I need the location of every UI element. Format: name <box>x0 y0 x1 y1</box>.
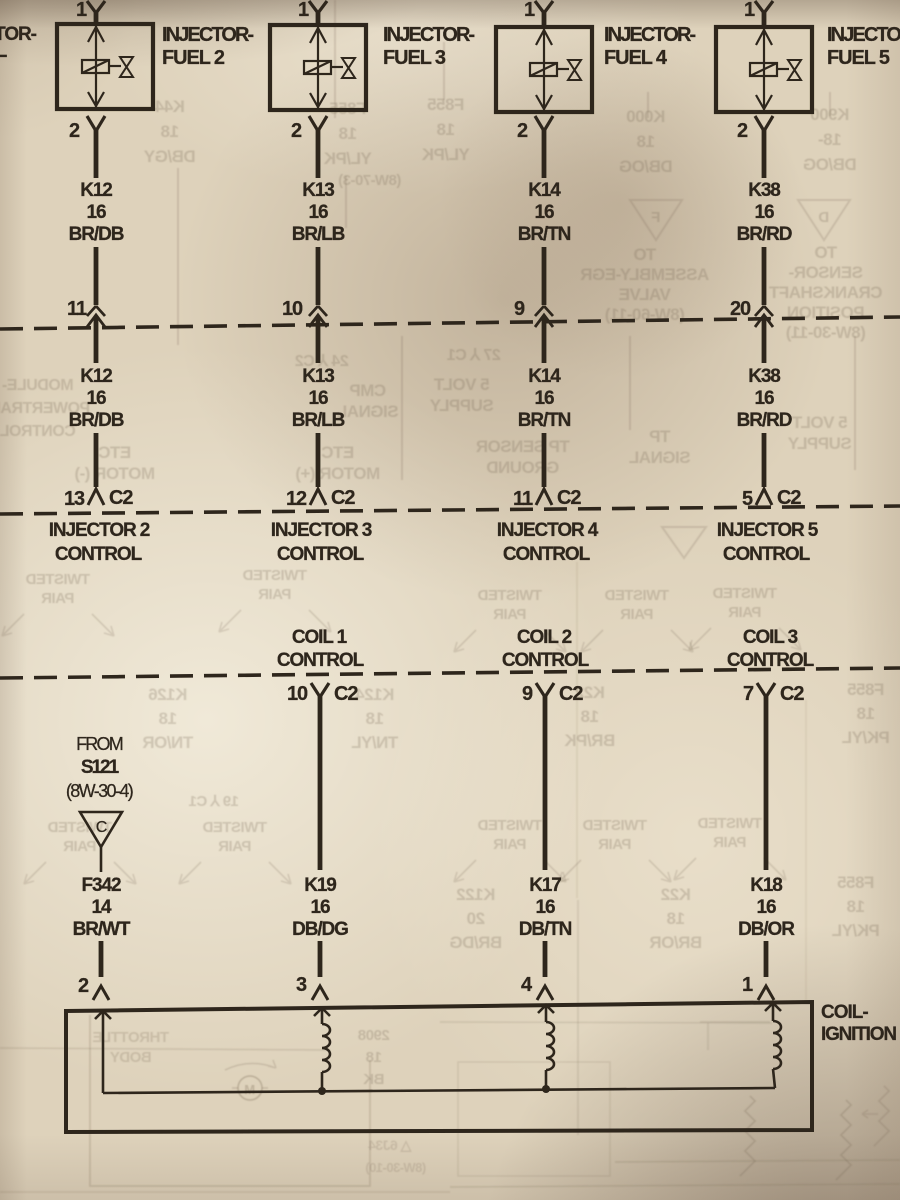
svg-text:CONTROL: CONTROL <box>55 544 143 565</box>
svg-text:CRANKSHAFT: CRANKSHAFT <box>768 283 882 302</box>
svg-text:16: 16 <box>311 897 330 918</box>
svg-text:MOTOR (-): MOTOR (-) <box>75 464 155 483</box>
svg-text:16: 16 <box>309 202 328 223</box>
svg-text:18: 18 <box>667 909 685 928</box>
svg-text:2: 2 <box>291 120 302 142</box>
svg-text:18: 18 <box>366 1049 382 1066</box>
svg-text:2: 2 <box>78 975 89 997</box>
svg-text:K14: K14 <box>528 180 561 201</box>
svg-text:9: 9 <box>522 683 533 705</box>
svg-text:BR/DG: BR/DG <box>450 933 503 952</box>
svg-text:16: 16 <box>535 388 554 409</box>
svg-text:K18: K18 <box>750 875 782 896</box>
svg-text:YL/PK: YL/PK <box>323 149 372 168</box>
svg-text:11: 11 <box>513 488 533 510</box>
svg-text:YL/PK: YL/PK <box>421 145 470 164</box>
svg-text:FROM: FROM <box>76 734 123 754</box>
svg-text:TN/YL: TN/YL <box>352 733 399 752</box>
svg-text:9: 9 <box>514 298 525 320</box>
svg-text:INJECTOR-: INJECTOR- <box>604 24 696 46</box>
svg-text:MODULE-: MODULE- <box>2 377 73 394</box>
svg-text:S121: S121 <box>81 757 120 778</box>
svg-text:CONTROL: CONTROL <box>723 544 811 565</box>
svg-text:ETC: ETC <box>322 443 355 462</box>
svg-text:5 VOLT: 5 VOLT <box>433 375 489 394</box>
svg-text:16: 16 <box>535 202 554 223</box>
svg-text:TWISTED: TWISTED <box>202 819 267 836</box>
svg-text:PAIR: PAIR <box>218 838 251 855</box>
svg-text:TWISTED: TWISTED <box>25 571 90 588</box>
svg-text:CMP: CMP <box>350 381 386 400</box>
svg-text:SUPPLY: SUPPLY <box>429 396 494 415</box>
svg-text:INJECTOR 3: INJECTOR 3 <box>271 520 372 541</box>
svg-text:BR/PK: BR/PK <box>564 731 616 750</box>
svg-text:10: 10 <box>282 298 303 320</box>
svg-text:2: 2 <box>69 120 80 142</box>
svg-text:INJECTOR 4: INJECTOR 4 <box>497 520 599 541</box>
svg-text:TWISTED: TWISTED <box>477 817 542 834</box>
svg-text:TP: TP <box>649 427 670 446</box>
svg-text:7: 7 <box>743 683 754 705</box>
svg-text:M: M <box>245 1082 255 1097</box>
svg-text:DB/OR: DB/OR <box>738 919 795 940</box>
svg-text:F342: F342 <box>82 875 121 896</box>
svg-text:18: 18 <box>161 122 179 141</box>
svg-text:IGNITION: IGNITION <box>821 1024 896 1045</box>
svg-text:CONTROL: CONTROL <box>277 544 365 565</box>
svg-text:PAIR: PAIR <box>598 836 631 853</box>
svg-text:16: 16 <box>755 202 774 223</box>
svg-text:DB/TN: DB/TN <box>519 919 572 940</box>
svg-text:PAIR: PAIR <box>63 838 96 855</box>
svg-text:K124: K124 <box>355 685 395 704</box>
svg-text:C2: C2 <box>777 487 801 509</box>
svg-text:BR/RD: BR/RD <box>737 224 792 245</box>
svg-text:(8W-30-4): (8W-30-4) <box>66 781 133 801</box>
svg-text:18: 18 <box>339 124 357 143</box>
svg-text:K000: K000 <box>627 107 666 126</box>
svg-text:TO: TO <box>634 245 657 264</box>
svg-text:K13: K13 <box>302 366 334 387</box>
svg-text:MOTOR (+): MOTOR (+) <box>296 464 380 483</box>
svg-text:PAIR: PAIR <box>620 606 653 623</box>
svg-text:PAIR: PAIR <box>713 834 746 851</box>
svg-text:C2: C2 <box>331 487 355 509</box>
svg-text:13: 13 <box>64 488 85 510</box>
svg-text:TWISTED: TWISTED <box>582 817 647 834</box>
svg-text:TWISTED: TWISTED <box>477 587 542 604</box>
svg-text:11: 11 <box>67 298 87 320</box>
svg-text:TO: TO <box>815 243 838 262</box>
svg-text:K122: K122 <box>457 885 496 904</box>
svg-text:1: 1 <box>298 0 309 21</box>
svg-text:F855: F855 <box>838 873 875 892</box>
svg-text:K38: K38 <box>748 366 780 387</box>
svg-text:DB/OG: DB/OG <box>803 155 857 174</box>
svg-text:K12: K12 <box>80 366 112 387</box>
svg-text:18: 18 <box>847 897 865 916</box>
svg-text:2908: 2908 <box>358 1027 390 1044</box>
svg-text:F855: F855 <box>428 95 465 114</box>
svg-text:18: 18 <box>437 120 455 139</box>
svg-text:18: 18 <box>581 707 599 726</box>
svg-text:CONTROL: CONTROL <box>727 650 815 671</box>
svg-text:1: 1 <box>524 0 535 21</box>
svg-text:1: 1 <box>742 974 753 996</box>
svg-text:4: 4 <box>521 974 533 996</box>
svg-text:PAIR: PAIR <box>258 586 291 603</box>
svg-text:14: 14 <box>92 897 112 918</box>
svg-text:C2: C2 <box>557 487 581 509</box>
svg-text:18: 18 <box>159 709 177 728</box>
svg-text:INJECTOR 2: INJECTOR 2 <box>49 520 150 541</box>
svg-text:CONTROL: CONTROL <box>277 650 365 671</box>
svg-text:SIGNAL: SIGNAL <box>337 402 398 421</box>
svg-text:SENSOR-: SENSOR- <box>789 263 863 282</box>
svg-text:16: 16 <box>757 897 776 918</box>
svg-text:INJECTOR-: INJECTOR- <box>162 24 254 46</box>
svg-text:INJECTOR 5: INJECTOR 5 <box>717 520 819 541</box>
svg-text:3: 3 <box>296 974 307 996</box>
svg-text:(8W-30-10): (8W-30-10) <box>366 1160 427 1175</box>
svg-text:C: C <box>96 819 107 836</box>
svg-text:K126: K126 <box>149 685 188 704</box>
svg-text:18-: 18- <box>818 130 841 149</box>
svg-text:TWISTED: TWISTED <box>697 815 762 832</box>
svg-text:CONTROL: CONTROL <box>0 423 76 440</box>
svg-text:5: 5 <box>742 488 753 510</box>
svg-text:COIL 3: COIL 3 <box>743 627 798 648</box>
svg-text:K44: K44 <box>154 97 185 116</box>
svg-text:BR/RD: BR/RD <box>737 410 792 431</box>
svg-text:16: 16 <box>755 388 774 409</box>
svg-text:PAIR: PAIR <box>728 604 761 621</box>
svg-text:19 ⅄ C1: 19 ⅄ C1 <box>189 793 239 810</box>
svg-text:18: 18 <box>857 704 875 723</box>
svg-text:F855: F855 <box>848 680 885 699</box>
svg-text:INJECTOR-: INJECTOR- <box>827 24 900 46</box>
svg-text:BK: BK <box>363 1071 384 1088</box>
svg-text:BR/LB: BR/LB <box>292 224 345 245</box>
svg-text:COIL 2: COIL 2 <box>517 627 572 648</box>
svg-text:CONTROL: CONTROL <box>503 544 591 565</box>
svg-text:C2: C2 <box>559 683 583 705</box>
svg-text:BR/LB: BR/LB <box>292 410 345 431</box>
svg-text:C2: C2 <box>109 487 133 509</box>
svg-text:BR/DB: BR/DB <box>69 410 124 431</box>
svg-text:C2: C2 <box>334 683 358 705</box>
svg-text:BR/TN: BR/TN <box>518 410 571 431</box>
svg-text:D: D <box>818 209 829 226</box>
svg-text:16: 16 <box>536 897 555 918</box>
svg-text:2: 2 <box>737 120 748 142</box>
svg-text:BR/WT: BR/WT <box>73 919 131 940</box>
svg-text:COIL 1: COIL 1 <box>292 627 348 648</box>
svg-text:FUEL 4: FUEL 4 <box>604 47 668 69</box>
svg-text:K12: K12 <box>80 180 112 201</box>
svg-text:TWISTED: TWISTED <box>604 587 669 604</box>
svg-text:△ 6J34: △ 6J34 <box>368 1137 413 1153</box>
svg-text:FUEL 5: FUEL 5 <box>827 47 890 69</box>
svg-text:K22: K22 <box>661 885 691 904</box>
svg-text:27 ⅄ C1: 27 ⅄ C1 <box>447 347 501 364</box>
svg-text:K14: K14 <box>528 366 561 387</box>
svg-text:BR/TN: BR/TN <box>518 224 571 245</box>
svg-text:K900: K900 <box>811 105 850 124</box>
svg-text:BR/DB: BR/DB <box>69 224 124 245</box>
svg-text:16: 16 <box>309 388 328 409</box>
svg-text:DB/OG: DB/OG <box>619 157 673 176</box>
svg-text:PAIR: PAIR <box>493 606 526 623</box>
svg-text:DB/DG: DB/DG <box>292 919 348 940</box>
svg-text:5 VOLT: 5 VOLT <box>791 413 847 432</box>
svg-text:16: 16 <box>87 388 106 409</box>
svg-text:COIL-: COIL- <box>821 1002 868 1023</box>
svg-text:12: 12 <box>286 488 307 510</box>
svg-text:FUEL 3: FUEL 3 <box>383 47 446 69</box>
svg-text:BODY: BODY <box>110 1049 152 1066</box>
svg-text:DB/GY: DB/GY <box>143 147 196 166</box>
svg-text:C2: C2 <box>780 683 804 705</box>
svg-text:TWISTED: TWISTED <box>712 585 777 602</box>
svg-text:TN/OR: TN/OR <box>143 733 194 752</box>
svg-text:K19: K19 <box>304 875 336 896</box>
svg-text:16: 16 <box>87 202 106 223</box>
svg-text:INJECTOR-: INJECTOR- <box>383 24 475 46</box>
svg-text:BR/OR: BR/OR <box>650 933 703 952</box>
svg-text:10: 10 <box>287 683 308 705</box>
svg-text:ETC: ETC <box>99 443 132 462</box>
svg-text:VALVE: VALVE <box>619 285 671 304</box>
svg-text:PK/YL: PK/YL <box>832 921 880 940</box>
svg-text:20: 20 <box>730 298 751 320</box>
svg-text:PAIR: PAIR <box>493 836 526 853</box>
svg-text:TWISTED: TWISTED <box>242 567 307 584</box>
svg-text:FUEL 2: FUEL 2 <box>162 47 225 69</box>
svg-text:PAIR: PAIR <box>41 590 74 607</box>
svg-text:(8W-70-3): (8W-70-3) <box>338 172 401 189</box>
svg-text:ASSEMBLY-EGR: ASSEMBLY-EGR <box>581 265 710 284</box>
svg-text:(8W-30-11): (8W-30-11) <box>786 323 866 342</box>
svg-text:18: 18 <box>637 132 655 151</box>
svg-text:SUPPLY: SUPPLY <box>787 434 852 453</box>
svg-text:1: 1 <box>744 0 755 21</box>
svg-text:SIGNAL: SIGNAL <box>629 448 690 467</box>
svg-text:TP SENSOR: TP SENSOR <box>476 437 570 456</box>
svg-text:18: 18 <box>366 709 384 728</box>
svg-text:20: 20 <box>467 909 485 928</box>
svg-text:F: F <box>651 209 660 226</box>
svg-text:GROUND: GROUND <box>487 458 560 477</box>
svg-text:PK/YL: PK/YL <box>842 728 890 747</box>
svg-text:2: 2 <box>517 120 528 142</box>
svg-text:K38: K38 <box>748 180 780 201</box>
svg-text:1: 1 <box>76 0 87 21</box>
svg-text:K17: K17 <box>529 875 561 896</box>
svg-text:CONTROL: CONTROL <box>502 650 590 671</box>
svg-text:K13: K13 <box>302 180 334 201</box>
